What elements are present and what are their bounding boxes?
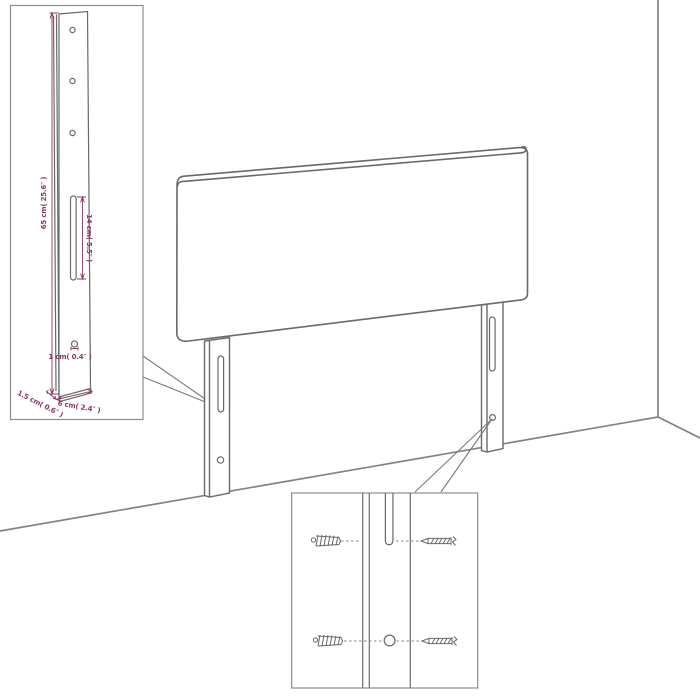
diagram-line-art	[0, 0, 700, 700]
bracket-leader-lines	[143, 356, 208, 403]
headboard-panel	[177, 147, 528, 342]
headboard-leg-left	[205, 338, 230, 498]
dimension-slot-label: 14 cm( 5.5″ )	[85, 214, 93, 262]
hardware-inset-panel	[292, 493, 478, 688]
dimension-hole-label: 1 cm( 0.4″ )	[48, 353, 91, 361]
assembly-diagram: 65 cm( 25.6″ ) 14 cm( 5.5″ ) 1 cm( 0.4″ …	[0, 0, 700, 700]
dimension-height-label: 65 cm( 25.6″ )	[40, 177, 48, 230]
hardware-leader-lines	[415, 419, 492, 492]
bracket-drawing	[54, 12, 92, 402]
